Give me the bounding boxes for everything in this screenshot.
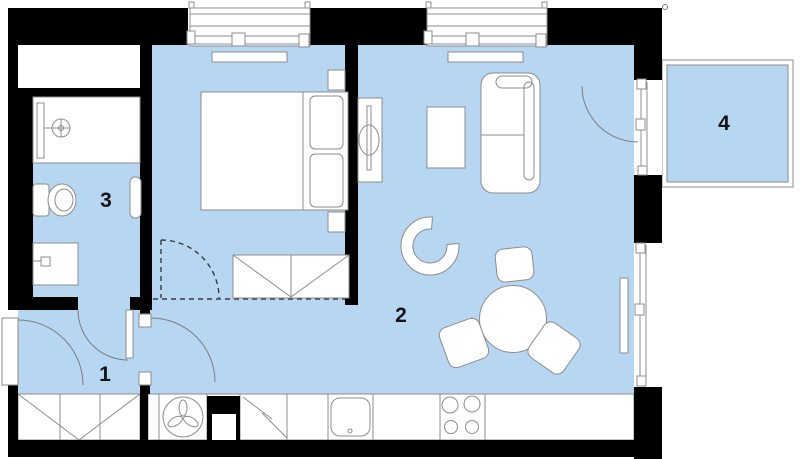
- window-handle: [187, 31, 195, 44]
- room-label-bathroom: 3: [100, 189, 112, 212]
- room-label-balcony: 4: [718, 112, 730, 135]
- window-handle: [466, 33, 479, 46]
- window-handle: [299, 34, 309, 47]
- bathroom-doorway-floor: [78, 297, 130, 310]
- wall-kitchen-end: [140, 394, 148, 440]
- wall-top-left: [8, 8, 188, 45]
- wall-left-thick: [8, 88, 33, 298]
- window-handle: [635, 304, 644, 315]
- radiator-side: [620, 278, 628, 353]
- pillow: [310, 96, 343, 149]
- hall-wardrobe: [18, 394, 140, 440]
- survey-marker: [663, 5, 668, 10]
- nightstand: [328, 70, 345, 90]
- toilet-icon: [33, 184, 76, 216]
- bedroom-wardrobe: [233, 255, 349, 298]
- window-handle: [536, 34, 546, 47]
- window-handle: [232, 33, 245, 46]
- wall-hall-top-left: [8, 297, 78, 310]
- towel-radiator: [130, 177, 141, 218]
- wall-bottom: [8, 440, 662, 457]
- pillow: [310, 154, 343, 207]
- bedroom-window: [187, 2, 310, 47]
- duct-shaft-opening: [212, 414, 236, 440]
- sofa: [481, 73, 540, 193]
- shower-icon: [33, 97, 140, 163]
- passage-floor: [148, 300, 358, 394]
- living-window: [424, 2, 547, 47]
- wall-top-right: [547, 8, 662, 45]
- window-handle: [636, 243, 645, 253]
- wall-right-a: [634, 45, 662, 80]
- wall-left-lower: [8, 385, 18, 440]
- room-label-living: 2: [395, 304, 407, 327]
- washbasin-icon: [33, 243, 78, 285]
- wall-right-b: [634, 175, 662, 243]
- sideboard-tv: [358, 98, 382, 182]
- wall-bedroom-left: [140, 45, 152, 300]
- storage-niche: [18, 45, 140, 88]
- floor-plan: 1 2 3 4: [0, 0, 800, 459]
- window-handle: [424, 31, 432, 44]
- radiator: [448, 52, 523, 62]
- wall-top-middle: [310, 8, 427, 45]
- stool-top: [494, 246, 534, 283]
- room-label-hall: 1: [99, 363, 111, 386]
- door-handle: [636, 119, 645, 130]
- floor-plan-drawing: 1 2 3 4: [0, 0, 800, 459]
- coffee-table: [427, 107, 465, 168]
- double-bed: [201, 92, 348, 210]
- wall-niche-band: [18, 88, 140, 97]
- radiator: [212, 52, 287, 62]
- door-handle: [638, 166, 647, 175]
- wall-hall-top-right: [130, 297, 152, 310]
- door-handle: [637, 79, 646, 89]
- nightstand: [328, 212, 345, 232]
- side-window: [634, 243, 662, 387]
- window-handle: [637, 376, 646, 386]
